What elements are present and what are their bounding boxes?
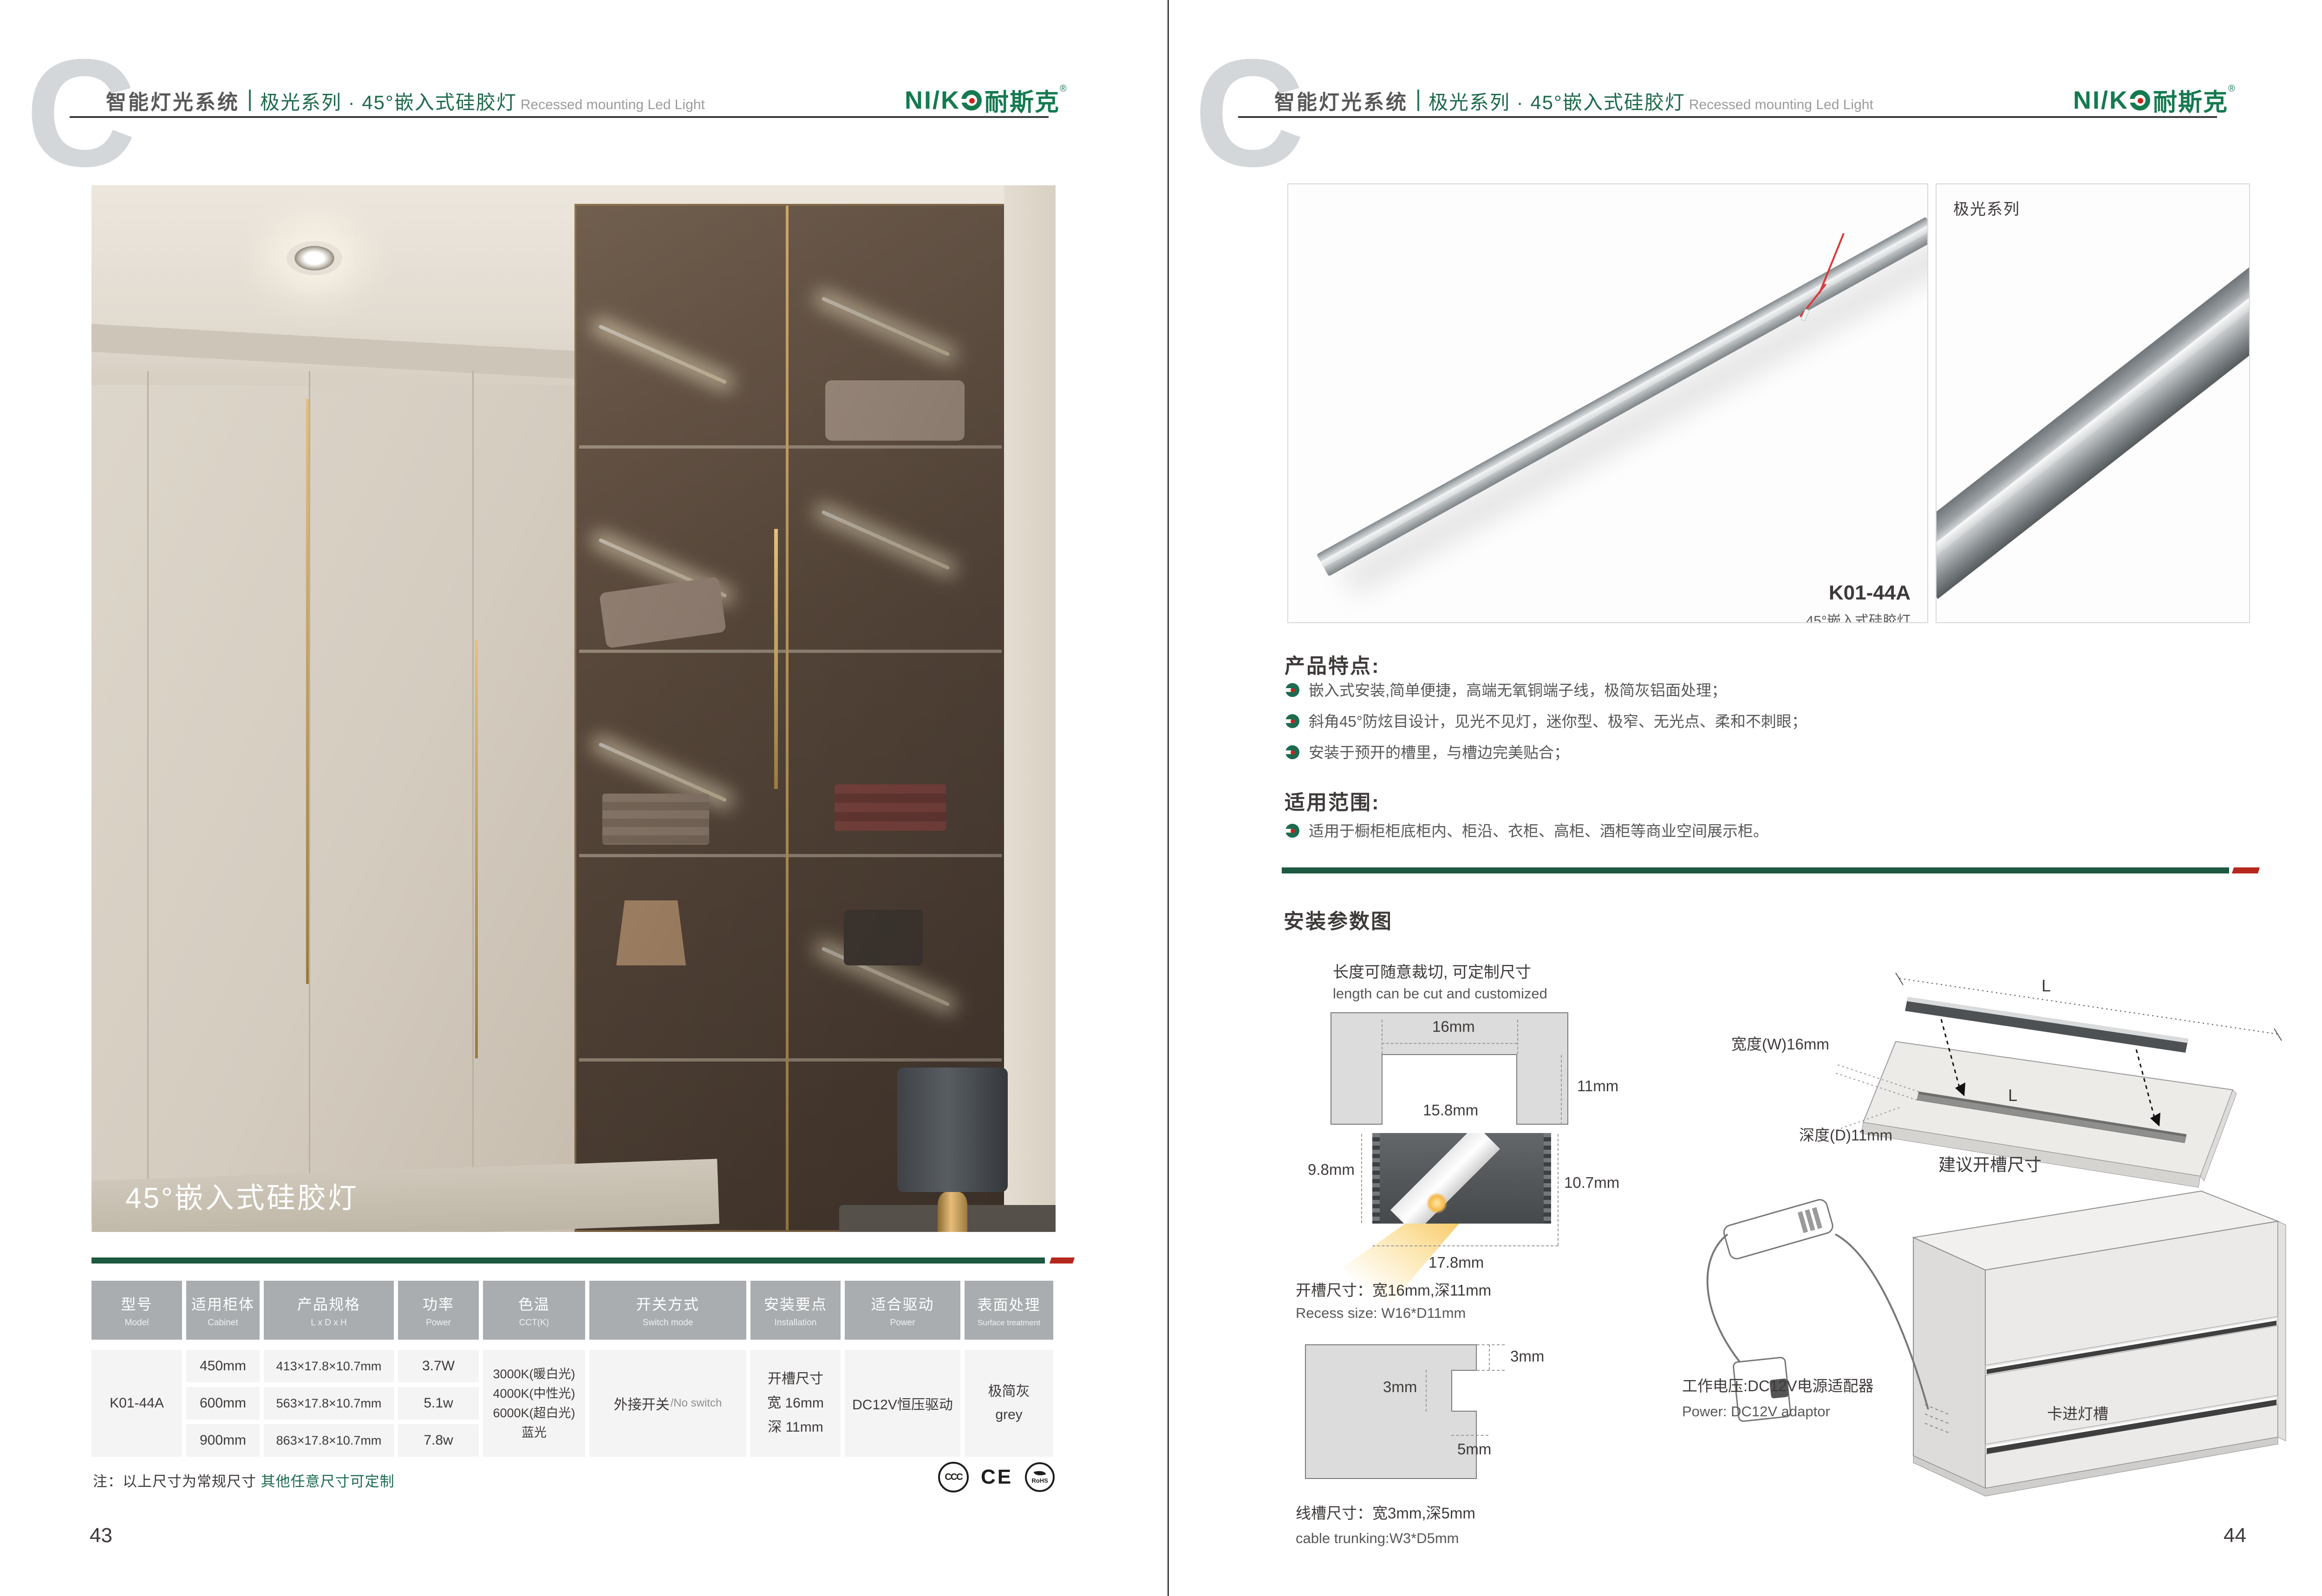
diffuser: [1390, 1133, 1500, 1224]
series-tag: 极光系列: [1953, 196, 2020, 219]
dim-17-8mm: 17.8mm: [1428, 1254, 1484, 1271]
scope-title: 适用范围:: [1285, 786, 1380, 815]
board-depth-label: 深度(D)11mm: [1799, 1123, 1892, 1145]
header-series-title: 极光系列 · 45°嵌入式硅胶灯: [260, 87, 517, 115]
spec-table: 型号Model K01-44A 适用柜体Cabinet 450mm 600mm …: [91, 1281, 1053, 1457]
dim-line: [1517, 1020, 1518, 1054]
product-code: K01-44A: [1725, 581, 1911, 605]
dim-line: [1558, 1134, 1559, 1245]
logo-cn: 耐斯克: [985, 83, 1060, 117]
floor-lamp-shade: [897, 1068, 1008, 1192]
board-L-groove: L: [2008, 1086, 2017, 1105]
door-seam: [147, 371, 149, 1232]
feature-item: 嵌入式安装,简单便捷，高端无氧铜端子线，极简灰铝面处理；: [1285, 680, 1861, 701]
dim-11mm: 11mm: [1577, 1077, 1618, 1095]
dim-line: [1426, 1370, 1427, 1412]
dim-line: [1382, 1043, 1517, 1044]
table-cell: 413×17.8×10.7mm: [264, 1350, 394, 1382]
dim-9-8mm: 9.8mm: [1308, 1161, 1355, 1179]
nisko-logo: NI/K 耐斯克 ®: [2073, 83, 2235, 117]
serrated-edge: [1372, 1133, 1380, 1224]
header-separator: [249, 90, 251, 111]
table-cell: 900mm: [186, 1424, 260, 1457]
ce-mark-icon: CE: [981, 1466, 1013, 1489]
header-rule: [70, 116, 1049, 118]
divider-green: [1282, 867, 2229, 873]
glass-door-handle: [774, 529, 778, 789]
serrated-edge: [1544, 1133, 1551, 1224]
wardrobe-doors: [91, 371, 584, 1232]
dim-15-8mm: 15.8mm: [1423, 1101, 1478, 1119]
certification-marks: CCC CE RoHS: [938, 1462, 1055, 1492]
power-label-en: Power: DC12V adaptor: [1682, 1403, 1830, 1420]
dim-line: [1477, 1370, 1505, 1371]
profile-body: [1372, 1133, 1551, 1224]
dim-line: [1451, 1435, 1488, 1436]
ceiling-spotlight: [287, 241, 342, 275]
col-surface: 表面处理Surface treatment 极简灰 grey: [965, 1281, 1053, 1457]
dim-line: [1382, 1020, 1383, 1054]
led-profile-bar: [1317, 217, 1928, 576]
door-handle: [306, 399, 309, 984]
led-profile-closeup: [1936, 229, 2250, 599]
note-highlight: 其他任意尺寸可定制: [261, 1473, 395, 1490]
dim-line: [1361, 1134, 1362, 1223]
clip-label: 卡进灯槽: [2047, 1401, 2108, 1424]
table-cell: 450mm: [186, 1350, 260, 1382]
size-note: 注：以上尺寸为常规尺寸 其他任意尺寸可定制: [93, 1470, 395, 1491]
col-size: 产品规格L x D x H 413×17.8×10.7mm 563×17.8×1…: [264, 1281, 394, 1457]
rohs-mark-icon: RoHS: [1025, 1462, 1055, 1492]
table-cell: 极简灰 grey: [965, 1350, 1053, 1457]
trunk-3mm-b: 3mm: [1383, 1378, 1417, 1396]
model-value: K01-44A: [110, 1395, 164, 1411]
door-seam: [472, 371, 474, 1232]
table-cell: 3.7W: [398, 1350, 479, 1382]
table-cell: 7.8w: [398, 1424, 479, 1457]
side-panel: [1004, 185, 1056, 1232]
page-number-left: 43: [90, 1524, 112, 1547]
feature-item: 安装于预开的槽里，与槽边完美贴合；: [1285, 743, 1861, 763]
gold-mullion: [786, 206, 789, 1230]
divider-green: [91, 1257, 1045, 1264]
product-closeup-box: 极光系列: [1936, 183, 2250, 623]
table-cell: 600mm: [186, 1387, 260, 1420]
col-model: 型号Model K01-44A: [91, 1281, 182, 1457]
divider-red: [1050, 1257, 1075, 1264]
trunk-label-zh: 线槽尺寸：宽3mm,深5mm: [1296, 1501, 1475, 1523]
door-handle: [475, 640, 478, 1058]
cabinet-install-diagram: [1653, 1184, 2303, 1509]
page-header: 智能灯光系统 极光系列 · 45°嵌入式硅胶灯 Recessed mountin…: [106, 85, 705, 115]
table-cell: 开槽尺寸 宽 16mm 深 11mm: [750, 1350, 841, 1457]
bullet-target-icon: [1285, 714, 1299, 728]
nisko-logo: NI/K 耐斯克 ®: [905, 83, 1067, 117]
trunk-5mm: 5mm: [1457, 1440, 1491, 1458]
logo-latin: NI/K: [905, 86, 960, 115]
col-header: 型号: [121, 1293, 152, 1314]
dim-line: [1561, 1055, 1562, 1125]
dim-10-7mm: 10.7mm: [1564, 1174, 1619, 1192]
logo-o-icon: [961, 90, 982, 111]
dim-line: [1489, 1344, 1490, 1370]
floor-lamp-stem: [938, 1192, 967, 1232]
ccc-mark-icon: CCC: [938, 1462, 969, 1492]
table-cell: 5.1w: [398, 1387, 479, 1420]
recess-label-zh: 开槽尺寸：宽16mm,深11mm: [1296, 1278, 1491, 1300]
col-cct: 色温CCT(K) 3000K(暖白光) 4000K(中性光) 6000K(超白光…: [483, 1281, 585, 1457]
divider-red: [2232, 867, 2260, 873]
page-left: C 智能灯光系统 极光系列 · 45°嵌入式硅胶灯 Recessed mount…: [0, 0, 1168, 1596]
header-rule: [1238, 116, 2217, 118]
table-cell: 563×17.8×10.7mm: [264, 1387, 394, 1420]
table-cell: 外接开关 /No switch: [589, 1350, 746, 1457]
page-right: C 智能灯光系统 极光系列 · 45°嵌入式硅胶灯 Recessed mount…: [1168, 0, 2322, 1596]
catalog-spread: C 智能灯光系统 极光系列 · 45°嵌入式硅胶灯 Recessed mount…: [0, 0, 2322, 1596]
board-width-label: 宽度(W)16mm: [1731, 1032, 1829, 1054]
board-L-top: L: [2042, 976, 2051, 996]
table-cell: DC12V恒压驱动: [845, 1350, 960, 1457]
col-power: 功率Power 3.7W 5.1w 7.8w: [398, 1281, 479, 1457]
trunk-3mm-a: 3mm: [1510, 1348, 1544, 1365]
col-switch: 开关方式Switch mode 外接开关 /No switch: [589, 1281, 746, 1457]
cut-note-en: length can be cut and customized: [1333, 985, 1547, 1002]
features-title: 产品特点:: [1285, 649, 1380, 679]
header-title: 智能灯光系统: [106, 85, 240, 115]
scope-item: 适用于橱柜柜底柜内、柜沿、衣柜、高柜、酒柜等商业空间展示柜。: [1285, 821, 1861, 842]
trunk-notch: [1451, 1370, 1477, 1412]
power-label-zh: 工作电压:DC12V电源适配器: [1682, 1374, 1874, 1396]
dim-16mm: 16mm: [1432, 1018, 1475, 1036]
page-header: 智能灯光系统 极光系列 · 45°嵌入式硅胶灯 Recessed mountin…: [1274, 85, 1873, 115]
install-title: 安装参数图: [1284, 905, 1393, 934]
page-number-right: 44: [2224, 1524, 2246, 1547]
led-module: [1426, 1192, 1448, 1214]
table-cell: 863×17.8×10.7mm: [264, 1424, 394, 1457]
bullet-target-icon: [1285, 745, 1299, 759]
col-driver: 适合驱动Power DC12V恒压驱动: [845, 1281, 960, 1457]
board-caption: 建议开槽尺寸: [1938, 1151, 2042, 1176]
header-subtitle-en: Recessed mounting Led Light: [521, 97, 705, 113]
logo-o-icon: [2130, 90, 2150, 111]
header-separator: [1417, 90, 1419, 111]
logo-registered-mark: ®: [1060, 84, 1067, 94]
trunk-label-en: cable trunking:W3*D5mm: [1296, 1530, 1459, 1547]
bullet-target-icon: [1285, 683, 1299, 697]
cut-note-zh: 长度可随意裁切, 可定制尺寸: [1333, 959, 1531, 982]
product-name: 45°嵌入式硅胶灯: [1725, 609, 1911, 623]
recess-label-en: Recess size: W16*D11mm: [1296, 1305, 1466, 1322]
wardrobe-photo: 45°嵌入式硅胶灯: [91, 185, 1056, 1232]
product-photo-box: K01-44A 45°嵌入式硅胶灯: [1287, 183, 1928, 623]
dim-line: [1477, 1344, 1505, 1345]
bullet-target-icon: [1285, 824, 1299, 838]
feature-item: 斜角45°防炫目设计，见光不见灯，迷你型、极窄、无光点、柔和不刺眼；: [1285, 711, 1861, 732]
table-cell: 3000K(暖白光) 4000K(中性光) 6000K(超白光) 蓝光: [483, 1350, 585, 1457]
col-install: 安装要点Installation 开槽尺寸 宽 16mm 深 11mm: [750, 1281, 841, 1457]
dim-line: [1372, 1245, 1558, 1246]
photo-caption: 45°嵌入式硅胶灯: [125, 1174, 359, 1216]
door-seam: [309, 371, 310, 1232]
col-cabinet: 适用柜体Cabinet 450mm 600mm 900mm: [186, 1281, 260, 1457]
trunk-block: [1305, 1344, 1477, 1479]
